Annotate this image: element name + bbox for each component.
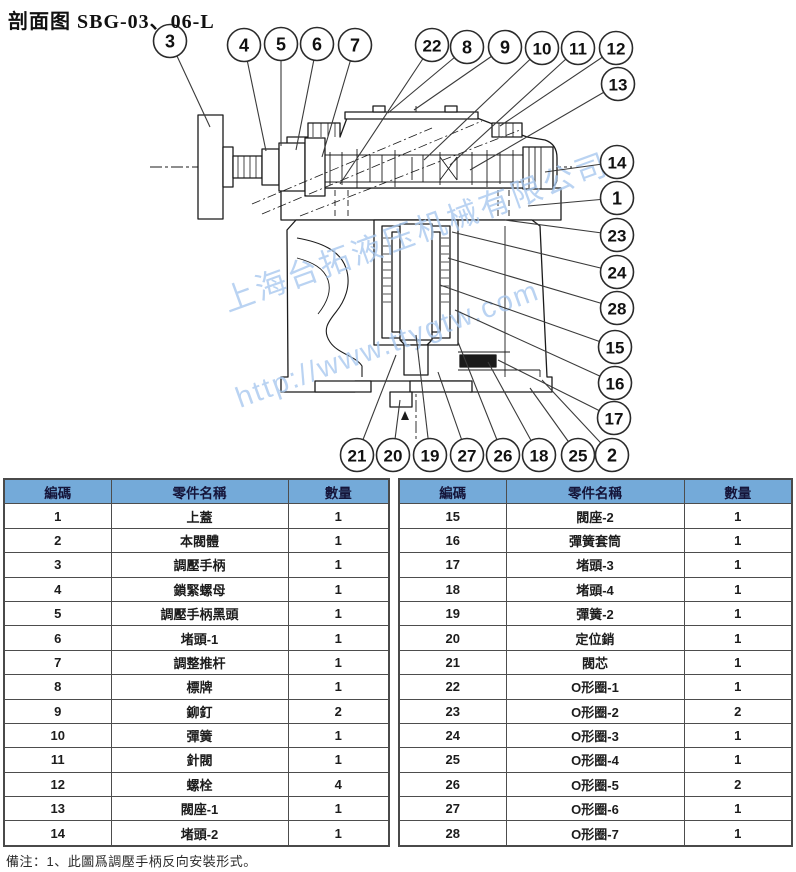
table-row: 21閥芯1 [399, 650, 792, 674]
part-code: 10 [4, 723, 111, 747]
callout-number: 25 [569, 447, 588, 466]
part-qty: 1 [288, 821, 389, 846]
part-code: 1 [4, 504, 111, 528]
part-qty: 1 [684, 797, 792, 821]
col-header-code: 編碼 [399, 479, 506, 504]
part-name: 閥座-2 [506, 504, 684, 528]
part-code: 14 [4, 821, 111, 846]
part-qty: 1 [684, 601, 792, 625]
foot-right [410, 381, 472, 392]
part-name: 針閥 [111, 748, 288, 772]
table-row: 11針閥1 [4, 748, 389, 772]
part-qty: 1 [288, 553, 389, 577]
shaft-collar [279, 143, 305, 191]
parts-table-right: 編碼 零件名稱 數量 15閥座-2116彈簧套筒117堵頭-3118堵頭-411… [398, 478, 793, 847]
col-header-qty: 數量 [684, 479, 792, 504]
part-code: 11 [4, 748, 111, 772]
col-header-qty: 數量 [288, 479, 389, 504]
table-row: 10彈簧1 [4, 723, 389, 747]
part-qty: 1 [684, 577, 792, 601]
callout-number: 13 [609, 76, 628, 95]
part-code: 5 [4, 601, 111, 625]
part-code: 13 [4, 797, 111, 821]
part-qty: 1 [288, 748, 389, 772]
nameplate [345, 112, 478, 119]
callout-number: 20 [384, 447, 403, 466]
callout-number: 23 [608, 227, 627, 246]
callout-number: 8 [462, 38, 472, 58]
part-name: 閥芯 [506, 650, 684, 674]
valve-drawing [150, 106, 572, 440]
part-qty: 1 [684, 821, 792, 846]
col-header-name: 零件名稱 [506, 479, 684, 504]
part-name: 調整推杆 [111, 650, 288, 674]
part-qty: 1 [288, 601, 389, 625]
part-code: 16 [399, 528, 506, 552]
part-qty: 2 [684, 772, 792, 796]
handle-hub [223, 147, 233, 187]
page-title: 剖面图 SBG-03、06-L [8, 5, 215, 34]
callout-number: 18 [530, 447, 549, 466]
threaded-shaft [233, 156, 262, 178]
callout-number: 9 [500, 38, 510, 58]
part-qty: 1 [288, 675, 389, 699]
part-name: 上蓋 [111, 504, 288, 528]
callout-number: 1 [612, 189, 622, 209]
part-code: 28 [399, 821, 506, 846]
part-qty: 1 [288, 626, 389, 650]
part-name: 堵頭-2 [111, 821, 288, 846]
rivet-left [373, 106, 385, 112]
part-name: 彈簧-2 [506, 601, 684, 625]
part-code: 2 [4, 528, 111, 552]
part-code: 24 [399, 723, 506, 747]
table-row: 19彈簧-21 [399, 601, 792, 625]
table-row: 26O形圈-52 [399, 772, 792, 796]
part-code: 4 [4, 577, 111, 601]
callout-number: 24 [608, 264, 627, 283]
shaft-gland [305, 138, 325, 196]
part-code: 21 [399, 650, 506, 674]
part-qty: 1 [684, 650, 792, 674]
part-code: 25 [399, 748, 506, 772]
table-row: 28O形圈-71 [399, 821, 792, 846]
callout-number: 16 [606, 375, 625, 394]
table-row: 17堵頭-31 [399, 553, 792, 577]
flow-arrow [401, 411, 409, 420]
part-name: O形圈-2 [506, 699, 684, 723]
part-name: 鎖緊螺母 [111, 577, 288, 601]
table-row: 4鎖緊螺母1 [4, 577, 389, 601]
part-name: 定位銷 [506, 626, 684, 650]
table-row: 3調壓手柄1 [4, 553, 389, 577]
part-code: 15 [399, 504, 506, 528]
bottom-stub [390, 392, 412, 407]
part-qty: 2 [288, 699, 389, 723]
part-name: 堵頭-4 [506, 577, 684, 601]
callout-number: 22 [423, 37, 442, 56]
table-header-row: 編碼 零件名稱 數量 [399, 479, 792, 504]
callout-number: 26 [494, 447, 513, 466]
part-name: O形圈-7 [506, 821, 684, 846]
part-name: 螺栓 [111, 772, 288, 796]
parts-table-left: 編碼 零件名稱 數量 1上蓋12本閥體13調壓手柄14鎖緊螺母15調壓手柄黑頭1… [3, 478, 390, 847]
callout-number: 2 [607, 446, 617, 466]
part-qty: 1 [684, 553, 792, 577]
table-row: 22O形圈-11 [399, 675, 792, 699]
callout-number: 27 [458, 447, 477, 466]
table-row: 12螺栓4 [4, 772, 389, 796]
part-qty: 1 [288, 577, 389, 601]
part-name: 標牌 [111, 675, 288, 699]
part-name: O形圈-5 [506, 772, 684, 796]
part-qty: 4 [288, 772, 389, 796]
callout-number: 12 [607, 40, 626, 59]
part-code: 18 [399, 577, 506, 601]
part-code: 22 [399, 675, 506, 699]
part-name: 堵頭-1 [111, 626, 288, 650]
part-name: 彈簧 [111, 723, 288, 747]
part-name: 閥座-1 [111, 797, 288, 821]
callout-number: 5 [276, 35, 286, 55]
footnote: 備注：1、此圖爲調壓手柄反向安裝形式。 [6, 851, 257, 870]
col-header-name: 零件名稱 [111, 479, 288, 504]
callout-number: 19 [421, 447, 440, 466]
table-row: 8標牌1 [4, 675, 389, 699]
col-header-code: 編碼 [4, 479, 111, 504]
part-name: O形圈-3 [506, 723, 684, 747]
callout-number: 11 [569, 40, 587, 59]
callout-number: 15 [606, 339, 625, 358]
part-name: 本閥體 [111, 528, 288, 552]
callout-number: 28 [608, 300, 627, 319]
part-code: 19 [399, 601, 506, 625]
part-qty: 1 [684, 626, 792, 650]
part-code: 9 [4, 699, 111, 723]
part-name: 彈簧套筒 [506, 528, 684, 552]
part-code: 12 [4, 772, 111, 796]
callout-number: 6 [312, 35, 322, 55]
callout-number: 10 [533, 40, 552, 59]
table-header-row: 編碼 零件名稱 數量 [4, 479, 389, 504]
part-qty: 1 [288, 797, 389, 821]
part-qty: 1 [684, 675, 792, 699]
part-name: 調壓手柄 [111, 553, 288, 577]
callout-number: 4 [239, 36, 249, 56]
table-row: 18堵頭-41 [399, 577, 792, 601]
part-code: 8 [4, 675, 111, 699]
table-row: 16彈簧套筒1 [399, 528, 792, 552]
part-name: 調壓手柄黑頭 [111, 601, 288, 625]
table-row: 27O形圈-61 [399, 797, 792, 821]
callout-number: 7 [350, 36, 360, 56]
table-row: 20定位銷1 [399, 626, 792, 650]
valve-cross-section-diagram: 上海台拓液压机械有限公司 http://www.ttygtw.com 34567… [0, 0, 796, 474]
part-code: 3 [4, 553, 111, 577]
callout-number: 17 [605, 410, 624, 429]
callout-number: 3 [165, 32, 175, 52]
part-qty: 2 [684, 699, 792, 723]
table-row: 1上蓋1 [4, 504, 389, 528]
part-name: O形圈-1 [506, 675, 684, 699]
part-qty: 1 [684, 748, 792, 772]
table-row: 23O形圈-22 [399, 699, 792, 723]
part-qty: 1 [288, 528, 389, 552]
rivet-right [445, 106, 457, 112]
part-qty: 1 [288, 504, 389, 528]
part-qty: 1 [684, 723, 792, 747]
table-row: 15閥座-21 [399, 504, 792, 528]
lock-nut [262, 149, 279, 185]
callout-leader-line [500, 48, 616, 126]
table-row: 9鉚釘2 [4, 699, 389, 723]
table-row: 24O形圈-31 [399, 723, 792, 747]
part-qty: 1 [684, 528, 792, 552]
part-code: 27 [399, 797, 506, 821]
part-code: 20 [399, 626, 506, 650]
part-code: 7 [4, 650, 111, 674]
part-code: 6 [4, 626, 111, 650]
table-row: 5調壓手柄黑頭1 [4, 601, 389, 625]
part-qty: 1 [684, 504, 792, 528]
table-row: 2本閥體1 [4, 528, 389, 552]
callout-number: 14 [608, 154, 627, 173]
part-name: 鉚釘 [111, 699, 288, 723]
callout-number: 21 [348, 447, 367, 466]
part-name: 堵頭-3 [506, 553, 684, 577]
part-qty: 1 [288, 650, 389, 674]
table-row: 6堵頭-11 [4, 626, 389, 650]
part-qty: 1 [288, 723, 389, 747]
table-row: 13閥座-11 [4, 797, 389, 821]
part-name: O形圈-4 [506, 748, 684, 772]
table-row: 14堵頭-21 [4, 821, 389, 846]
table-row: 7調整推杆1 [4, 650, 389, 674]
part-code: 23 [399, 699, 506, 723]
part-code: 26 [399, 772, 506, 796]
table-row: 25O形圈-41 [399, 748, 792, 772]
handle-knob [198, 115, 223, 219]
part-code: 17 [399, 553, 506, 577]
part-name: O形圈-6 [506, 797, 684, 821]
